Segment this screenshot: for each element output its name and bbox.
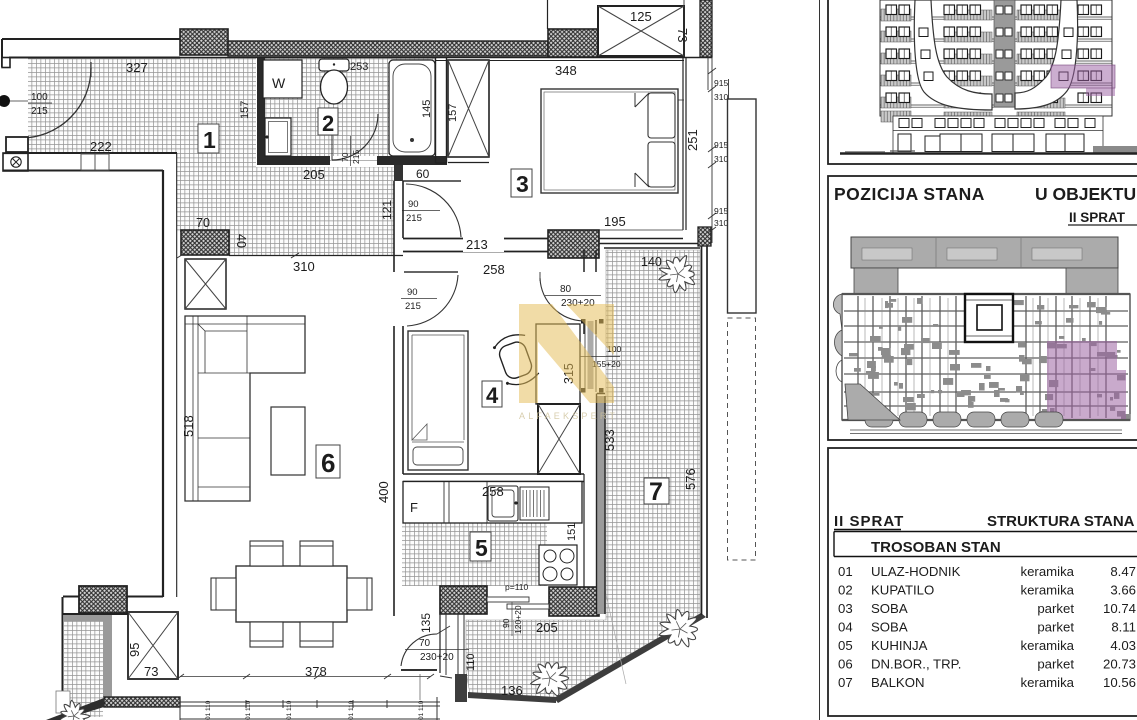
svg-text:5: 5 <box>475 535 488 561</box>
svg-text:80: 80 <box>560 284 572 295</box>
svg-text:310: 310 <box>293 259 315 274</box>
svg-text:100: 100 <box>31 92 48 103</box>
svg-text:70: 70 <box>196 216 210 230</box>
svg-text:110: 110 <box>465 653 477 671</box>
svg-text:8.47: 8.47 <box>1110 564 1136 579</box>
svg-text:II SPRAT: II SPRAT <box>834 513 904 530</box>
svg-text:U OBJEKTU: U OBJEKTU <box>1035 184 1136 204</box>
svg-text:keramika: keramika <box>1021 564 1075 579</box>
svg-text:533: 533 <box>602 429 617 451</box>
svg-text:parket: parket <box>1037 601 1074 616</box>
svg-text:03: 03 <box>838 601 853 616</box>
svg-text:915: 915 <box>714 206 728 216</box>
svg-text:215: 215 <box>406 213 422 224</box>
svg-text:518: 518 <box>181 415 196 437</box>
svg-text:151: 151 <box>566 523 578 541</box>
svg-text:310: 310 <box>714 154 728 164</box>
svg-text:90: 90 <box>501 618 511 628</box>
svg-text:915: 915 <box>714 78 728 88</box>
svg-text:400: 400 <box>376 481 391 503</box>
svg-text:STRUKTURA STANA: STRUKTURA STANA <box>987 513 1135 530</box>
svg-text:4.03: 4.03 <box>1110 638 1136 653</box>
svg-text:40: 40 <box>234 234 248 248</box>
svg-text:07: 07 <box>838 675 853 690</box>
svg-text:195: 195 <box>604 214 626 229</box>
svg-text:keramika: keramika <box>1021 638 1075 653</box>
svg-text:135: 135 <box>419 613 433 633</box>
svg-text:keramika: keramika <box>1021 583 1075 598</box>
svg-text:136: 136 <box>501 683 523 698</box>
svg-text:parket: parket <box>1037 657 1074 672</box>
svg-text:205: 205 <box>303 167 325 182</box>
svg-text:4: 4 <box>486 383 499 408</box>
svg-text:157: 157 <box>447 104 459 122</box>
svg-text:215: 215 <box>31 106 48 117</box>
svg-text:01: 01 <box>838 564 853 579</box>
svg-text:KUHINJA: KUHINJA <box>871 638 928 653</box>
svg-text:01 110: 01 110 <box>245 700 252 720</box>
svg-text:06: 06 <box>838 657 853 672</box>
svg-text:213: 213 <box>466 237 488 252</box>
svg-text:310: 310 <box>714 218 728 228</box>
svg-text:05: 05 <box>838 638 853 653</box>
svg-text:253: 253 <box>350 61 368 73</box>
svg-text:60: 60 <box>416 167 430 181</box>
svg-text:251: 251 <box>685 129 700 151</box>
svg-text:378: 378 <box>305 664 327 679</box>
svg-text:140: 140 <box>641 255 662 269</box>
svg-text:20.73: 20.73 <box>1103 657 1136 672</box>
svg-text:145: 145 <box>421 100 433 118</box>
svg-text:1: 1 <box>203 127 216 153</box>
svg-text:222: 222 <box>90 139 112 154</box>
svg-text:KUPATILO: KUPATILO <box>871 583 934 598</box>
svg-text:DN.BOR., TRP.: DN.BOR., TRP. <box>871 657 961 672</box>
svg-text:327: 327 <box>126 60 148 75</box>
svg-text:3.66: 3.66 <box>1110 583 1136 598</box>
svg-text:keramika: keramika <box>1021 675 1075 690</box>
svg-text:8.11: 8.11 <box>1111 620 1136 635</box>
svg-text:p=110: p=110 <box>505 582 529 592</box>
svg-text:04: 04 <box>838 620 853 635</box>
svg-text:157: 157 <box>239 101 251 119</box>
svg-text:95: 95 <box>127 643 142 657</box>
svg-text:73: 73 <box>144 664 158 679</box>
svg-text:7: 7 <box>649 478 663 506</box>
svg-text:70: 70 <box>419 638 431 649</box>
svg-text:3: 3 <box>516 171 529 197</box>
svg-text:120+20: 120+20 <box>513 605 523 634</box>
svg-text:10.74: 10.74 <box>1103 601 1136 616</box>
svg-text:ULAZ-HODNIK: ULAZ-HODNIK <box>871 564 961 579</box>
svg-text:TROSOBAN STAN: TROSOBAN STAN <box>871 539 1001 556</box>
svg-text:2: 2 <box>322 111 334 136</box>
svg-text:90: 90 <box>407 287 418 298</box>
svg-text:205: 205 <box>536 620 558 635</box>
svg-text:02: 02 <box>838 583 853 598</box>
svg-text:348: 348 <box>555 63 577 78</box>
svg-text:310: 310 <box>714 92 728 102</box>
svg-text:230+20: 230+20 <box>420 652 454 663</box>
svg-text:121: 121 <box>380 200 394 220</box>
svg-text:01 110: 01 110 <box>418 700 425 720</box>
svg-text:70: 70 <box>340 152 350 162</box>
svg-text:6: 6 <box>321 448 335 478</box>
svg-text:POZICIJA STANA: POZICIJA STANA <box>834 184 985 204</box>
svg-text:SOBA: SOBA <box>871 620 908 635</box>
svg-text:258: 258 <box>483 262 505 277</box>
svg-text:10.56: 10.56 <box>1103 675 1136 690</box>
svg-text:215: 215 <box>351 150 361 164</box>
svg-text:90: 90 <box>408 199 419 210</box>
svg-text:BALKON: BALKON <box>871 675 925 690</box>
svg-text:parket: parket <box>1037 620 1074 635</box>
svg-text:W: W <box>272 75 286 91</box>
svg-text:915: 915 <box>714 140 728 150</box>
svg-text:ALFAEKSPERT: ALFAEKSPERT <box>519 411 618 421</box>
svg-text:01 110: 01 110 <box>205 700 212 720</box>
svg-text:73: 73 <box>675 28 690 42</box>
svg-text:01 110: 01 110 <box>286 700 293 720</box>
svg-text:01 110: 01 110 <box>348 700 355 720</box>
svg-text:II SPRAT: II SPRAT <box>1069 210 1126 225</box>
svg-text:258: 258 <box>482 484 504 499</box>
svg-text:125: 125 <box>630 9 652 24</box>
svg-text:SOBA: SOBA <box>871 601 908 616</box>
svg-text:F: F <box>410 500 418 515</box>
svg-text:215: 215 <box>405 301 421 312</box>
svg-text:576: 576 <box>683 468 698 490</box>
